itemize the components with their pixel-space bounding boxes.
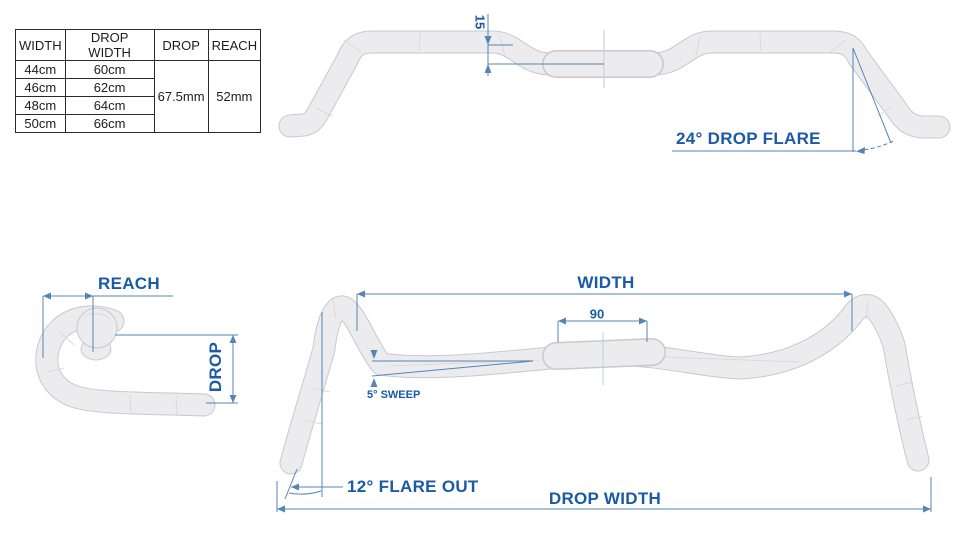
spec-table-header-reach: REACH <box>208 30 261 61</box>
drop-width-label: DROP WIDTH <box>549 489 661 509</box>
table-cell-drop-value: 67.5mm <box>154 61 208 133</box>
sweep-label: 5° SWEEP <box>367 389 420 401</box>
table-cell-width: 46cm <box>16 79 66 97</box>
table-cell-drop-width: 64cm <box>65 97 154 115</box>
reach-label: REACH <box>98 274 160 294</box>
spec-table-header-drop: DROP <box>154 30 208 61</box>
front-view-width-dimension <box>357 291 852 332</box>
table-cell-width: 44cm <box>16 61 66 79</box>
table-cell-width: 50cm <box>16 115 66 133</box>
clamp-90-label: 90 <box>590 307 604 322</box>
spec-table-header-drop-width: DROP WIDTH <box>65 30 154 61</box>
spec-table: WIDTH DROP WIDTH DROP REACH 44cm 60cm 67… <box>15 29 261 133</box>
width-label: WIDTH <box>577 273 634 293</box>
table-cell-drop-width: 60cm <box>65 61 154 79</box>
table-cell-drop-width: 66cm <box>65 115 154 133</box>
handlebar-top-view-shape <box>290 30 939 127</box>
drop-label: DROP <box>206 342 226 392</box>
handlebar-technical-drawing: WIDTH DROP WIDTH DROP REACH 44cm 60cm 67… <box>0 0 962 540</box>
table-cell-width: 48cm <box>16 97 66 115</box>
table-cell-drop-width: 62cm <box>65 79 154 97</box>
handlebar-front-view-shape <box>291 300 922 463</box>
table-cell-reach-value: 52mm <box>208 61 261 133</box>
flare-out-label: 12° FLARE OUT <box>347 477 479 497</box>
drop-flare-label: 24° DROP FLARE <box>676 129 821 149</box>
table-row: 44cm 60cm 67.5mm 52mm <box>16 61 261 79</box>
spec-table-header-width: WIDTH <box>16 30 66 61</box>
backsweep-15-label: 15 <box>473 15 488 29</box>
handlebar-side-view-shape <box>47 308 204 414</box>
spec-table-header-row: WIDTH DROP WIDTH DROP REACH <box>16 30 261 61</box>
